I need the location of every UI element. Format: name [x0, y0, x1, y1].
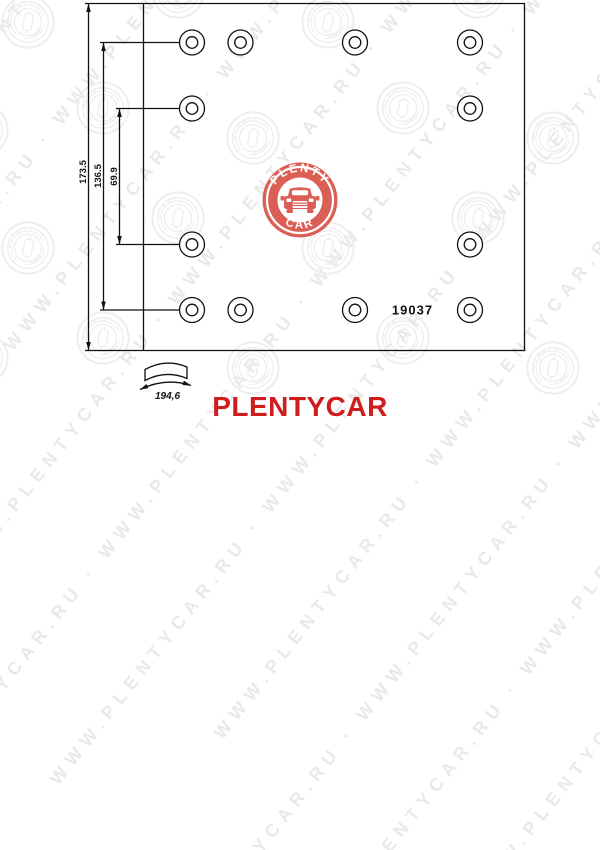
- cross-section-profile: [145, 363, 187, 380]
- rivet-hole: [343, 30, 368, 55]
- rivet-hole: [458, 96, 483, 121]
- brand-wordmark: PLENTYCAR: [0, 391, 600, 423]
- dimension-label-total-height: 173.5: [78, 159, 89, 183]
- dimension-label-inner-holes: 69.9: [109, 167, 120, 186]
- rivet-hole: [228, 30, 253, 55]
- arc-dimension-line: [140, 382, 191, 389]
- rivet-hole: [458, 298, 483, 323]
- rivet-hole: [180, 232, 205, 257]
- part-number-label: 19037: [392, 303, 433, 318]
- rivet-hole: [228, 298, 253, 323]
- plentycar-logo: PLENTY CAR: [260, 161, 340, 241]
- rivet-hole: [180, 298, 205, 323]
- rivet-hole: [343, 298, 368, 323]
- rivet-hole: [458, 30, 483, 55]
- rivet-hole: [458, 232, 483, 257]
- rivet-hole: [180, 30, 205, 55]
- rivet-hole: [180, 96, 205, 121]
- dimension-label-outer-holes: 136.5: [93, 163, 104, 187]
- dimension-arrowheads: [86, 4, 192, 392]
